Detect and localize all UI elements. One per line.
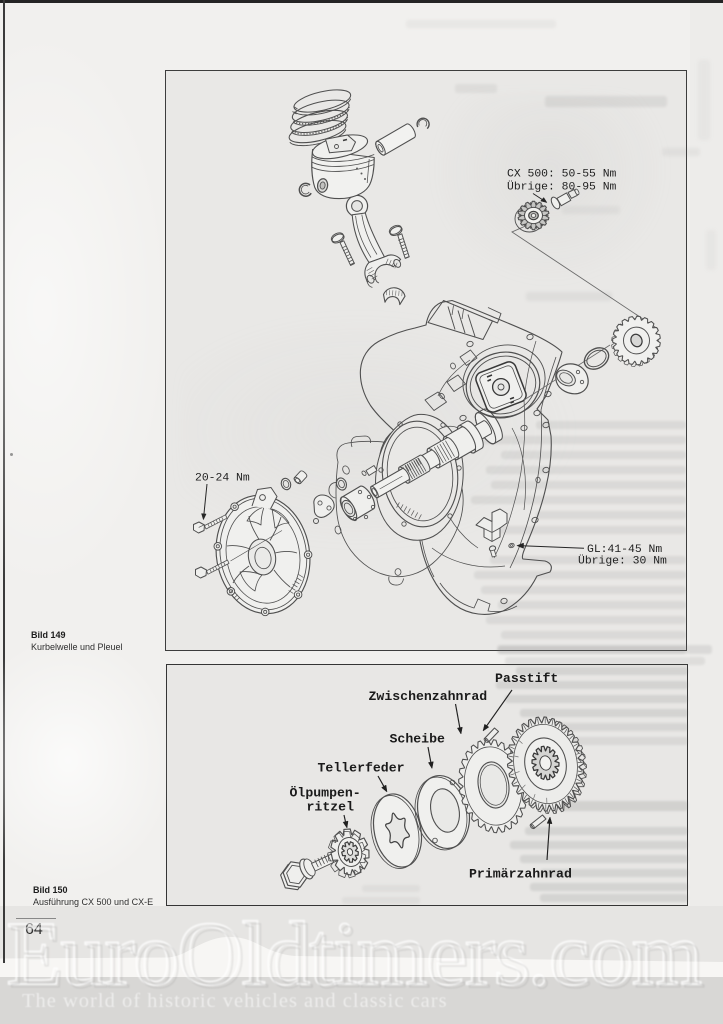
svg-text:Übrige: 30 Nm: Übrige: 30 Nm: [578, 555, 667, 568]
svg-text:Scheibe: Scheibe: [390, 732, 445, 747]
svg-text:Primärzahnrad: Primärzahnrad: [469, 867, 572, 882]
svg-text:CX 500: 50-55 Nm: CX 500: 50-55 Nm: [507, 169, 617, 181]
svg-text:Passtift: Passtift: [495, 671, 558, 686]
svg-text:ritzel: ritzel: [307, 800, 355, 815]
svg-text:Ölpumpen-: Ölpumpen-: [290, 785, 361, 801]
svg-text:Übrige: 80-95 Nm: Übrige: 80-95 Nm: [507, 181, 617, 194]
svg-text:20-24 Nm: 20-24 Nm: [195, 473, 250, 485]
svg-text:Tellerfeder: Tellerfeder: [318, 761, 405, 776]
svg-text:GL:41-45 Nm: GL:41-45 Nm: [587, 544, 662, 556]
svg-text:Zwischenzahnrad: Zwischenzahnrad: [369, 689, 488, 704]
